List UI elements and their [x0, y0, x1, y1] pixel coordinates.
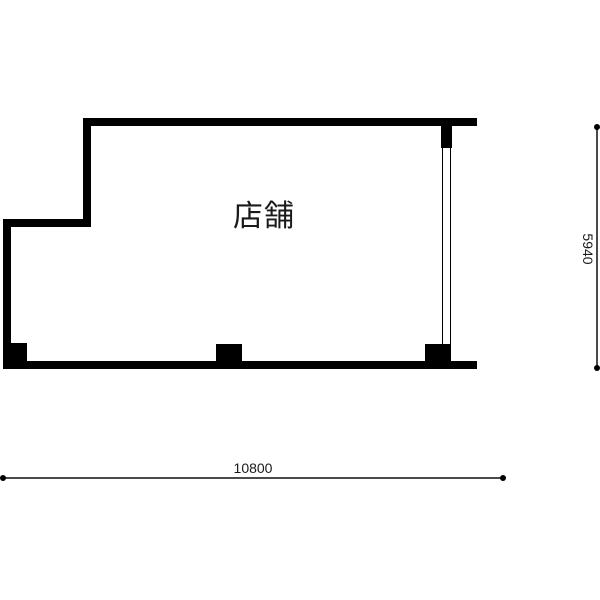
dimension-endpoint-dot	[0, 475, 6, 481]
dimension-height-line	[596, 127, 598, 368]
pillar-bottom-right	[425, 344, 451, 369]
dimension-endpoint-dot	[594, 124, 600, 130]
pillar-bottom-middle	[216, 344, 242, 369]
wall-window-top-stub	[441, 126, 452, 148]
wall-upper-left-vertical	[83, 118, 91, 227]
wall-notch-horizontal	[3, 219, 91, 227]
storefront-window	[442, 148, 451, 344]
dimension-endpoint-dot	[500, 475, 506, 481]
dimension-width-line	[3, 477, 503, 479]
floor-plan: 店舗 10800 5940	[0, 0, 600, 600]
pillar-bottom-left	[3, 343, 27, 369]
room-label: 店舗	[214, 201, 314, 232]
dimension-width-label: 10800	[203, 461, 303, 475]
dimension-endpoint-dot	[594, 365, 600, 371]
wall-top	[83, 118, 477, 126]
dimension-height-label: 5940	[579, 199, 595, 299]
